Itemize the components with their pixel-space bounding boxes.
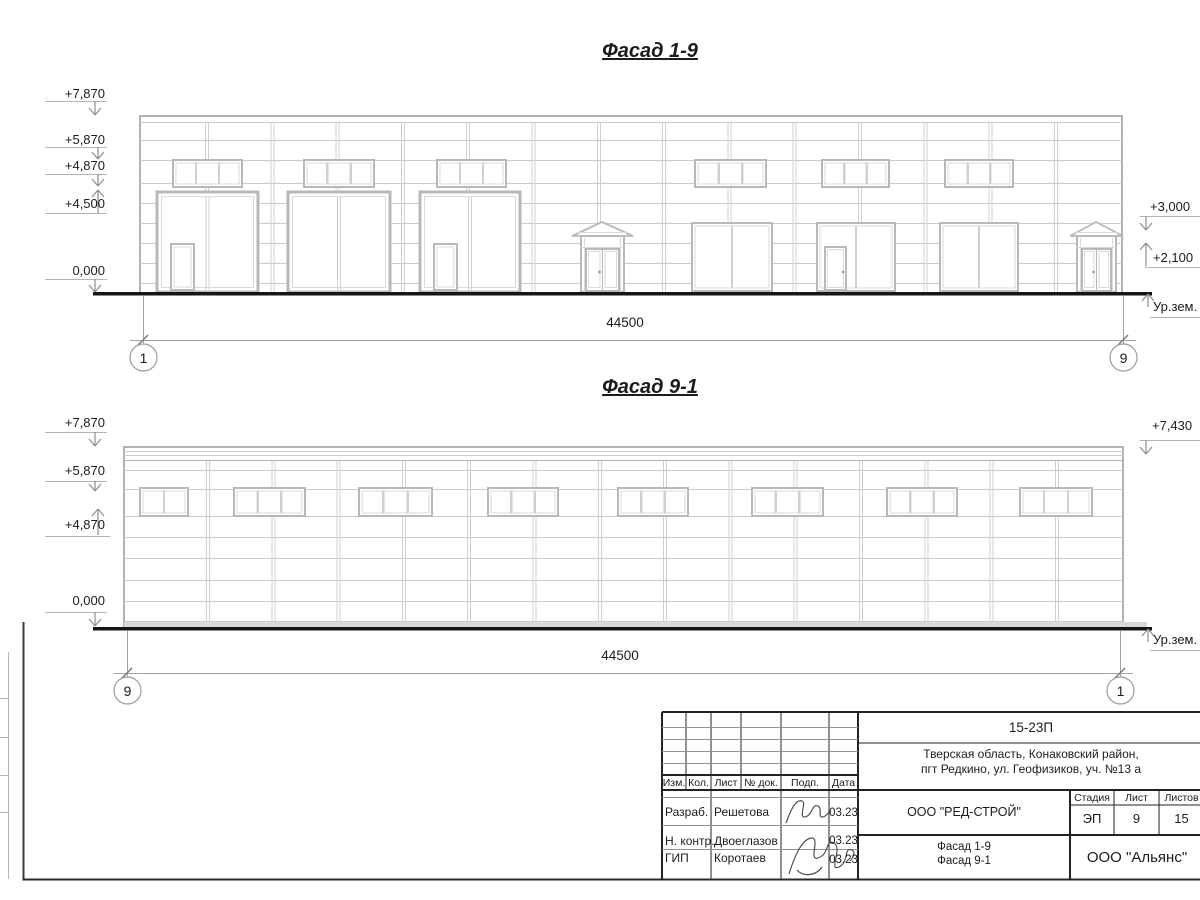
stage-value: ЭП [1070, 812, 1114, 827]
titleblock-row-date: 03.23 [829, 807, 858, 820]
sheet-number-value: 9 [1114, 812, 1159, 827]
ground-level-label: Ур.зем. [1153, 300, 1197, 315]
axis-bubble-label: 9 [1108, 350, 1139, 366]
elevation-mark-label: +7,870 [45, 416, 105, 431]
axis-bubble-label: 1 [128, 350, 159, 366]
elevation-mark-label: 0,000 [45, 264, 105, 279]
sheet-column-label: Лист [1114, 792, 1159, 804]
elevation-mark-label: +5,870 [45, 464, 105, 479]
elevation-mark-label: 0,000 [45, 594, 105, 609]
titleblock-col-doc: № док. [741, 777, 781, 789]
drawing-sheet: Фасад 1-9 +7,870 +5,870 +4,870 +4,500 0,… [0, 0, 1200, 900]
sheets-total-value: 15 [1159, 812, 1200, 827]
project-address-line2: пгт Редкино, ул. Геофизиков, уч. №13 а [858, 763, 1200, 777]
axis-bubble-label: 1 [1105, 683, 1136, 699]
titleblock-col-kol: Кол. [686, 777, 711, 789]
titleblock-col-list: Лист [711, 777, 741, 789]
facade-2-dimensions [114, 631, 1134, 704]
project-address-line1: Тверская область, Конаковский район, [858, 748, 1200, 762]
stage-column-label: Стадия [1070, 792, 1114, 804]
titleblock-row-role: Разраб. [665, 806, 708, 820]
elevation-mark-label: +2,100 [1153, 251, 1193, 266]
titleblock-row-date: 03.23 [829, 835, 858, 848]
titleblock-row-name: Коротаев [714, 852, 766, 866]
sheet-title-line2: Фасад 9-1 [858, 855, 1070, 868]
document-code: 15-23П [858, 720, 1200, 736]
facade-2-linework [93, 447, 1152, 629]
elevation-mark-label: +5,870 [45, 133, 105, 148]
facade-1-linework [93, 116, 1152, 294]
elevation-mark-label: +4,870 [45, 518, 105, 533]
sheets-column-label: Листов [1159, 792, 1200, 804]
elevation-mark-label: +7,870 [45, 87, 105, 102]
facade-1-dimensions [130, 296, 1137, 371]
client-organization: ООО "РЕД-СТРОЙ" [858, 805, 1070, 819]
titleblock-row-name: Решетова [714, 806, 769, 820]
titleblock-col-izm: Изм. [662, 777, 686, 789]
elevation-mark-label: +4,870 [45, 159, 105, 174]
dimension-value: 44500 [525, 315, 725, 331]
axis-bubble-label: 9 [112, 683, 143, 699]
facade-2-title: Фасад 9-1 [450, 376, 850, 399]
titleblock-row-role: ГИП [665, 852, 689, 866]
titleblock-row-name: Двоеглазов [714, 835, 778, 849]
titleblock-row-date: 03.23 [829, 854, 858, 867]
elevation-mark-label: +7,430 [1152, 419, 1192, 434]
contractor-organization: ООО "Альянс" [1070, 849, 1200, 866]
titleblock-col-podp: Подп. [781, 777, 829, 789]
facade-1-title: Фасад 1-9 [450, 40, 850, 63]
dimension-value: 44500 [520, 648, 720, 664]
ground-level-label: Ур.зем. [1153, 633, 1197, 648]
titleblock-col-data: Дата [829, 777, 858, 789]
titleblock-row-role: Н. контр. [665, 835, 715, 849]
elevation-mark-label: +4,500 [45, 197, 105, 212]
elevation-mark-label: +3,000 [1150, 200, 1190, 215]
sheet-title-line1: Фасад 1-9 [858, 841, 1070, 854]
